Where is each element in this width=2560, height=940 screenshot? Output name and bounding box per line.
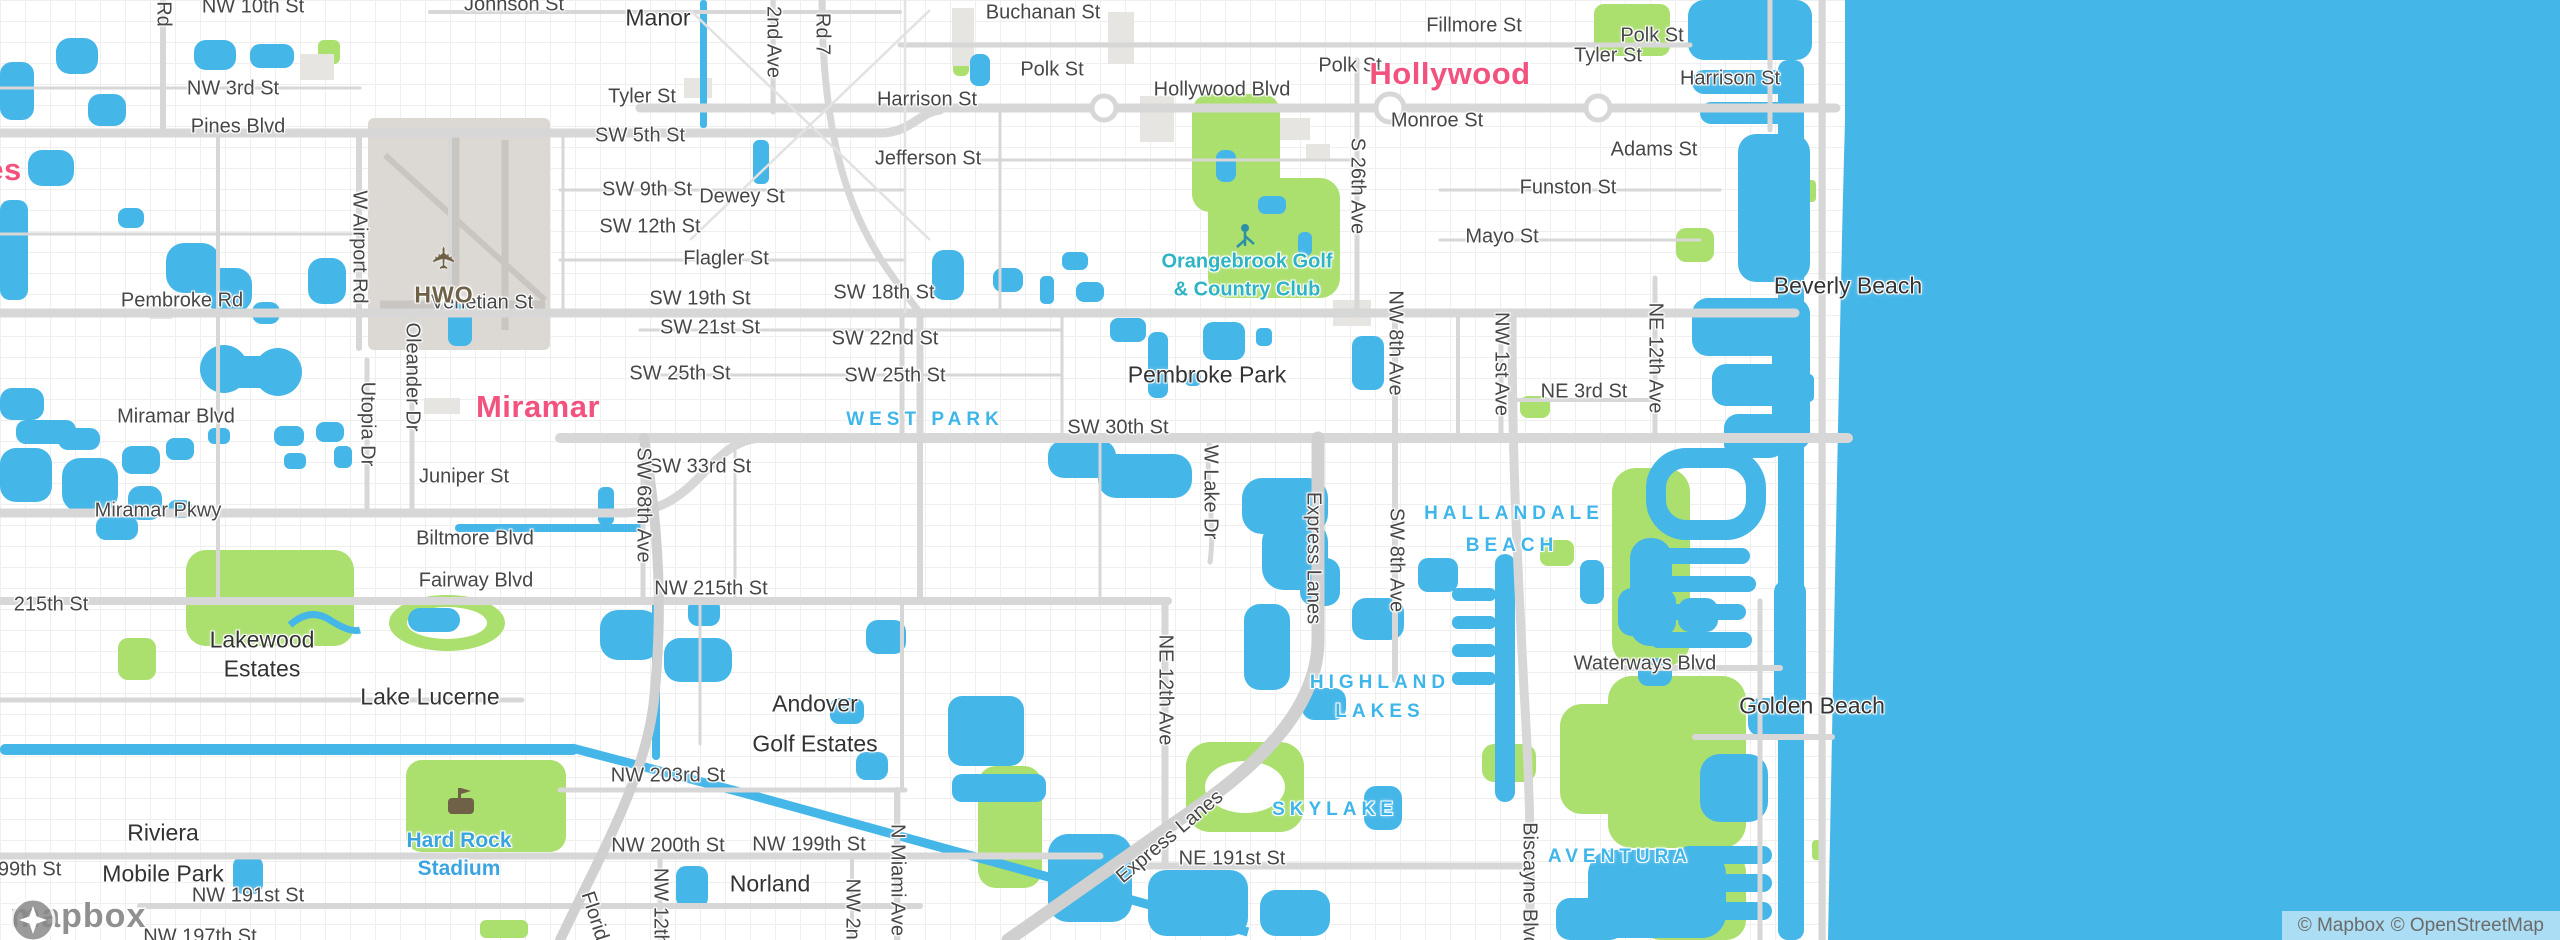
st-label-tyler-st: Tyler St (608, 86, 676, 109)
st-label-nw-191st-st: NW 191st St (192, 885, 304, 908)
suburb-label-golden-beach: Golden Beach (1739, 693, 1885, 720)
suburb-label-golf-estates: Golf Estates (752, 731, 877, 758)
suburb-label-manor: Manor (625, 5, 690, 32)
poi-s-label-hard-rock: Hard Rock (406, 829, 511, 853)
st-label-nw-199th-st: NW 199th St (752, 834, 865, 857)
st-label-tyler-st: Tyler St (1574, 45, 1642, 68)
suburb-label-beverly-beach: Beverly Beach (1774, 273, 1922, 300)
st-label-juniper-st: Juniper St (419, 466, 509, 489)
st-label-sw-5th-st: SW 5th St (595, 125, 685, 148)
st-label-ne-191st-st: NE 191st St (1179, 848, 1286, 871)
suburb-label-estates: Estates (224, 656, 301, 683)
st-label-sw-19th-st: SW 19th St (649, 288, 750, 311)
st-label-nw-215th-st: NW 215th St (654, 578, 767, 601)
st-label-buchanan-st: Buchanan St (986, 2, 1101, 25)
stv-label-sw-8th-ave: SW 8th Ave (1385, 508, 1408, 612)
poi-g-label--country-club: & Country Club (1174, 279, 1321, 302)
suburb-label-lakewood: Lakewood (210, 627, 315, 654)
stv-label-nw-2nd-ave: NW 2nd Ave (841, 879, 864, 940)
stv-label-nw-8th-ave: NW 8th Ave (1384, 290, 1407, 395)
stv-label-oleander-dr: Oleander Dr (401, 323, 424, 432)
stv-label-express-lanes: Express Lanes (1302, 492, 1325, 624)
st-label-sw-33rd-st: SW 33rd St (649, 456, 751, 479)
stv-label-utopia-dr: Utopia Dr (356, 382, 379, 466)
nb-label-lakes: LAKES (1335, 701, 1424, 723)
stv-label-s-26th-ave: S 26th Ave (1346, 138, 1369, 234)
st-label-johnson-st: Johnson St (464, 0, 564, 17)
airplane-icon: ✈ (428, 245, 463, 270)
st-label-biltmore-blvd: Biltmore Blvd (416, 528, 534, 551)
poi-g-label-orangebrook-golf: Orangebrook Golf (1161, 251, 1332, 274)
st-label-harrison-st: Harrison St (877, 89, 977, 112)
st-label-fillmore-st: Fillmore St (1426, 15, 1522, 38)
st-label-sw-22nd-st: SW 22nd St (832, 328, 939, 351)
st-label-sw-18th-st: SW 18th St (833, 282, 934, 305)
city-label-hollywood: Hollywood (1369, 56, 1530, 92)
st-label-nw-10th-st: NW 10th St (202, 0, 304, 19)
stv-label-biscayne-blvd: Biscayne Blvd (1518, 822, 1541, 940)
st-label-polk-st: Polk St (1020, 59, 1083, 82)
suburb-label-riviera: Riviera (127, 820, 199, 847)
suburb-label-pembroke-park: Pembroke Park (1128, 362, 1287, 389)
attribution-mapbox-link[interactable]: © Mapbox (2298, 915, 2385, 937)
stv-label-sw-68th-ave: SW 68th Ave (632, 447, 655, 562)
st-label-jefferson-st: Jefferson St (875, 148, 981, 171)
stv-label-2nd-ave: 2nd Ave (762, 6, 785, 78)
mapbox-logo[interactable]: mapbox (10, 897, 146, 936)
poi-s-label-stadium: Stadium (418, 857, 501, 881)
city-label-miramar: Miramar (476, 389, 600, 425)
attribution-bar: © Mapbox © OpenStreetMap (2282, 911, 2560, 940)
suburb-label-lake-lucerne: Lake Lucerne (360, 684, 499, 711)
st-label-sw-25th-st: SW 25th St (629, 363, 730, 386)
nb-label-hallandale: HALLANDALE (1424, 503, 1604, 525)
st-label-sw-12th-st: SW 12th St (599, 216, 700, 239)
st-label-nw-3rd-st: NW 3rd St (187, 78, 279, 101)
st-label-sw-9th-st: SW 9th St (602, 179, 692, 202)
st-label-sw-30th-st: SW 30th St (1067, 417, 1168, 440)
st-label-sw-21st-st: SW 21st St (660, 317, 760, 340)
nb-label-highland: HIGHLAND (1310, 672, 1450, 694)
city-label-es: es (0, 152, 22, 188)
st-label-nw-203rd-st: NW 203rd St (611, 765, 725, 788)
nb-label-west-park: WEST PARK (846, 409, 1004, 431)
st-label-mayo-st: Mayo St (1465, 226, 1538, 249)
st-label-harrison-st: Harrison St (1680, 68, 1780, 91)
st-label-pembroke-rd: Pembroke Rd (121, 290, 243, 313)
st-label-dewey-st: Dewey St (699, 186, 785, 209)
stv-label-nw-12th-ave: NW 12th Ave (649, 868, 672, 940)
label-layer: NW 10th StJohnson StManorBuchanan StFill… (0, 0, 2560, 940)
nb-label-beach: BEACH (1466, 535, 1559, 557)
st-label-hollywood-blvd: Hollywood Blvd (1154, 79, 1291, 102)
st-label-adams-st: Adams St (1611, 139, 1698, 162)
stv-label-rd: Rd (152, 1, 175, 27)
stv-label-n-miami-ave: N Miami Ave (886, 824, 909, 936)
stv-label-florida-s: Florida's (575, 889, 620, 940)
st-label-nw-200th-st: NW 200th St (611, 835, 724, 858)
nb-label-skylake: SKYLAKE (1272, 799, 1398, 821)
st-label-miramar-blvd: Miramar Blvd (117, 406, 235, 429)
st-label-flagler-st: Flagler St (683, 248, 769, 271)
apt-label-hwo: HWO (414, 282, 473, 309)
suburb-label-mobile-park: Mobile Park (102, 861, 223, 888)
suburb-label-norland: Norland (730, 871, 811, 898)
st-label-funston-st: Funston St (1520, 177, 1617, 200)
st-label-199th-st: 199th St (0, 859, 61, 882)
st-label-nw-197th-st: NW 197th St (143, 926, 256, 940)
stv-label-nw-1st-ave: NW 1st Ave (1490, 312, 1513, 416)
stv-label-ne-12th-ave: NE 12th Ave (1644, 303, 1667, 414)
stv-label-rd-7: Rd 7 (811, 13, 834, 55)
stv-label-w-lake-dr: W Lake Dr (1199, 445, 1222, 539)
map-viewport[interactable]: NW 10th StJohnson StManorBuchanan StFill… (0, 0, 2560, 940)
suburb-label-andover: Andover (772, 691, 858, 718)
nb-label-aventura: AVENTURA (1548, 846, 1692, 868)
st-label-fairway-blvd: Fairway Blvd (419, 570, 533, 593)
st-label-ne-3rd-st: NE 3rd St (1541, 381, 1628, 404)
stv-label-w-airport-rd: W Airport Rd (348, 190, 371, 303)
attribution-osm-link[interactable]: © OpenStreetMap (2391, 915, 2544, 937)
st-label-pines-blvd: Pines Blvd (191, 116, 286, 139)
st-label-miramar-pkwy: Miramar Pkwy (95, 500, 222, 523)
st-label-waterways-blvd: Waterways Blvd (1574, 653, 1717, 676)
stv-label-express-lanes: Express Lanes (1112, 786, 1228, 889)
st-label-sw-25th-st: SW 25th St (844, 365, 945, 388)
st-label-monroe-st: Monroe St (1391, 110, 1483, 133)
stv-label-ne-12th-ave: NE 12th Ave (1154, 635, 1177, 746)
st-label-215th-st: 215th St (14, 594, 89, 617)
mapbox-logo-icon (10, 897, 56, 940)
